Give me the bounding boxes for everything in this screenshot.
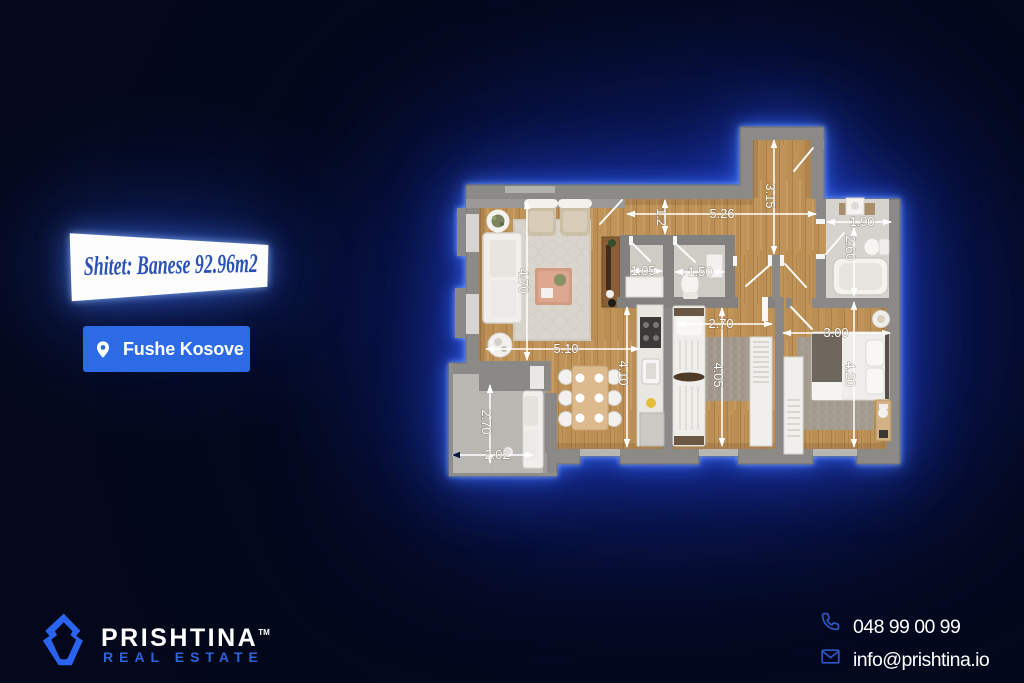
- svg-text:2.70: 2.70: [709, 316, 734, 331]
- svg-text:1.50: 1.50: [688, 264, 713, 279]
- svg-text:1.2: 1.2: [654, 208, 669, 226]
- svg-text:4.20: 4.20: [843, 362, 858, 387]
- svg-text:1.90: 1.90: [850, 214, 875, 229]
- svg-text:4.05: 4.05: [711, 363, 726, 388]
- svg-text:4.10: 4.10: [616, 361, 631, 386]
- svg-text:3.00: 3.00: [824, 325, 849, 340]
- svg-text:Shitet: Banese 92.96m2: Shitet: Banese 92.96m2: [84, 248, 258, 281]
- svg-text:2.02: 2.02: [485, 447, 510, 462]
- svg-text:2.60: 2.60: [843, 236, 858, 261]
- svg-text:2.70: 2.70: [479, 410, 494, 435]
- svg-text:5.26: 5.26: [710, 206, 735, 221]
- svg-text:5.10: 5.10: [554, 341, 579, 356]
- svg-text:4.70: 4.70: [516, 269, 531, 294]
- svg-text:3.15: 3.15: [763, 184, 778, 209]
- svg-text:1.05: 1.05: [631, 263, 656, 278]
